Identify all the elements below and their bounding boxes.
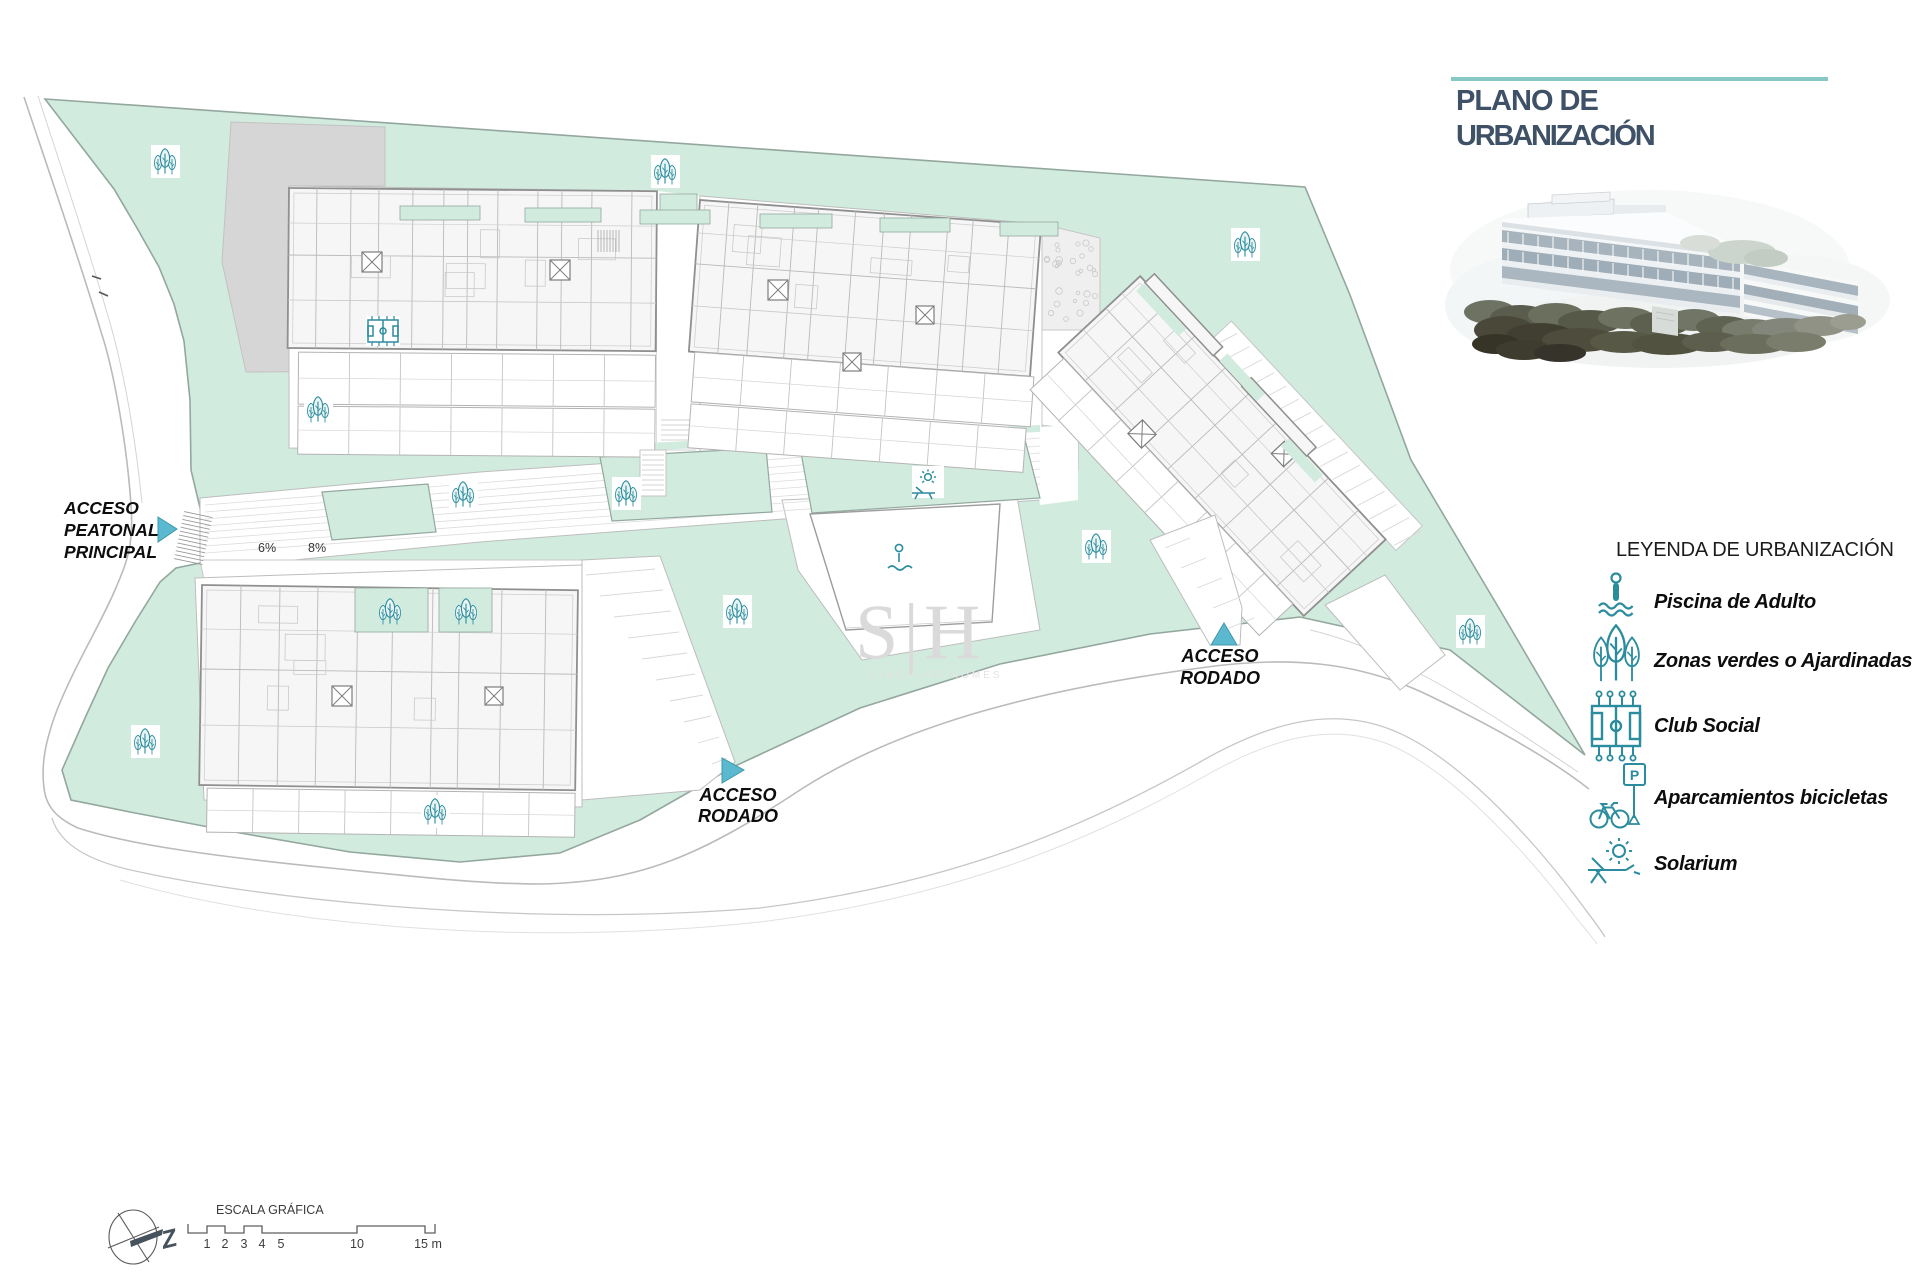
svg-text:3: 3 [241, 1237, 248, 1251]
svg-text:SINGULAR HOMES: SINGULAR HOMES [870, 670, 1003, 681]
svg-text:ACCESO: ACCESO [698, 785, 776, 805]
svg-text:RODADO: RODADO [1180, 668, 1260, 688]
svg-text:LEYENDA DE URBANIZACIÓN: LEYENDA DE URBANIZACIÓN [1616, 538, 1894, 561]
svg-text:PRINCIPAL: PRINCIPAL [64, 542, 157, 562]
svg-text:PEATONAL: PEATONAL [64, 520, 159, 540]
svg-text:Zonas verdes o Ajardinadas: Zonas verdes o Ajardinadas [1653, 650, 1912, 672]
svg-text:Club Social: Club Social [1654, 715, 1760, 737]
svg-text:1: 1 [204, 1237, 211, 1251]
svg-text:RODADO: RODADO [698, 806, 778, 826]
svg-text:URBANIZACIÓN: URBANIZACIÓN [1456, 118, 1654, 152]
svg-text:ACCESO: ACCESO [63, 498, 139, 518]
svg-text:Aparcamientos bicicletas: Aparcamientos bicicletas [1653, 787, 1888, 809]
svg-text:S|H: S|H [855, 588, 985, 675]
svg-text:Piscina de Adulto: Piscina de Adulto [1654, 591, 1816, 613]
svg-text:5: 5 [278, 1237, 285, 1251]
svg-text:4: 4 [259, 1237, 266, 1251]
svg-text:15 m: 15 m [414, 1237, 442, 1251]
svg-text:8%: 8% [308, 541, 326, 555]
svg-text:PLANO DE: PLANO DE [1456, 85, 1599, 117]
svg-text:2: 2 [222, 1237, 229, 1251]
svg-text:Solarium: Solarium [1654, 853, 1737, 875]
svg-text:ESCALA GRÁFICA: ESCALA GRÁFICA [216, 1202, 324, 1217]
svg-text:6%: 6% [258, 541, 276, 555]
svg-text:10: 10 [350, 1237, 364, 1251]
svg-text:ACCESO: ACCESO [1180, 646, 1258, 666]
svg-text:P: P [1630, 767, 1639, 783]
